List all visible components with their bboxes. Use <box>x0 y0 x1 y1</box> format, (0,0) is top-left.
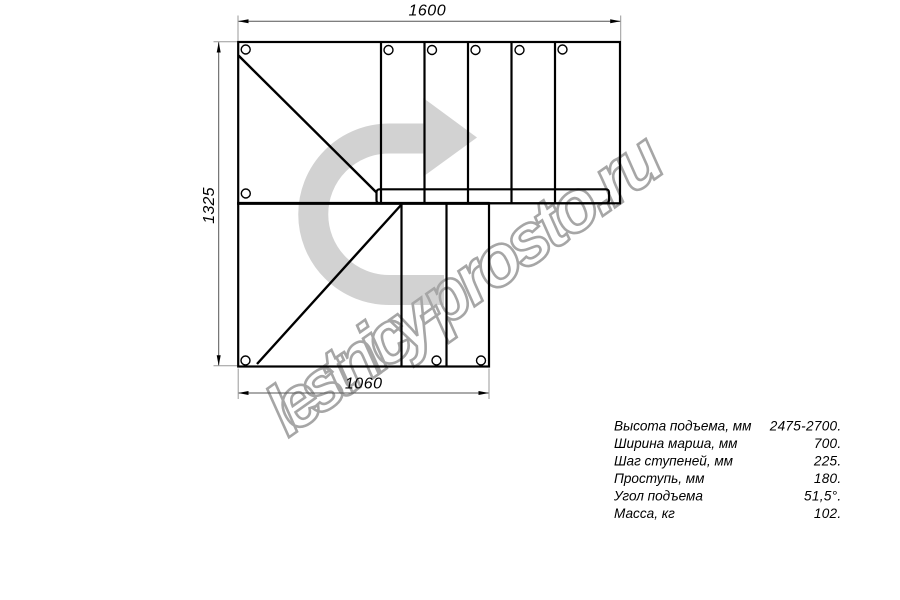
svg-text:Шаг ступеней, мм: Шаг ступеней, мм <box>614 453 734 468</box>
svg-text:51,5°.: 51,5°. <box>804 488 841 503</box>
svg-text:2475-2700.: 2475-2700. <box>769 418 842 433</box>
svg-text:1600: 1600 <box>409 3 447 20</box>
svg-text:700.: 700. <box>814 436 842 451</box>
svg-text:102.: 102. <box>814 506 842 521</box>
svg-text:180.: 180. <box>814 471 842 486</box>
svg-text:1325: 1325 <box>201 187 218 223</box>
svg-text:Угол подъема: Угол подъема <box>613 488 703 503</box>
svg-text:Высота подъема, мм: Высота подъема, мм <box>614 418 752 433</box>
svg-text:225.: 225. <box>813 453 842 468</box>
svg-text:Ширина марша, мм: Ширина марша, мм <box>614 436 738 451</box>
svg-text:1060: 1060 <box>345 376 383 393</box>
svg-text:Проступь, мм: Проступь, мм <box>614 471 705 486</box>
svg-text:Масса, кг: Масса, кг <box>614 506 675 521</box>
